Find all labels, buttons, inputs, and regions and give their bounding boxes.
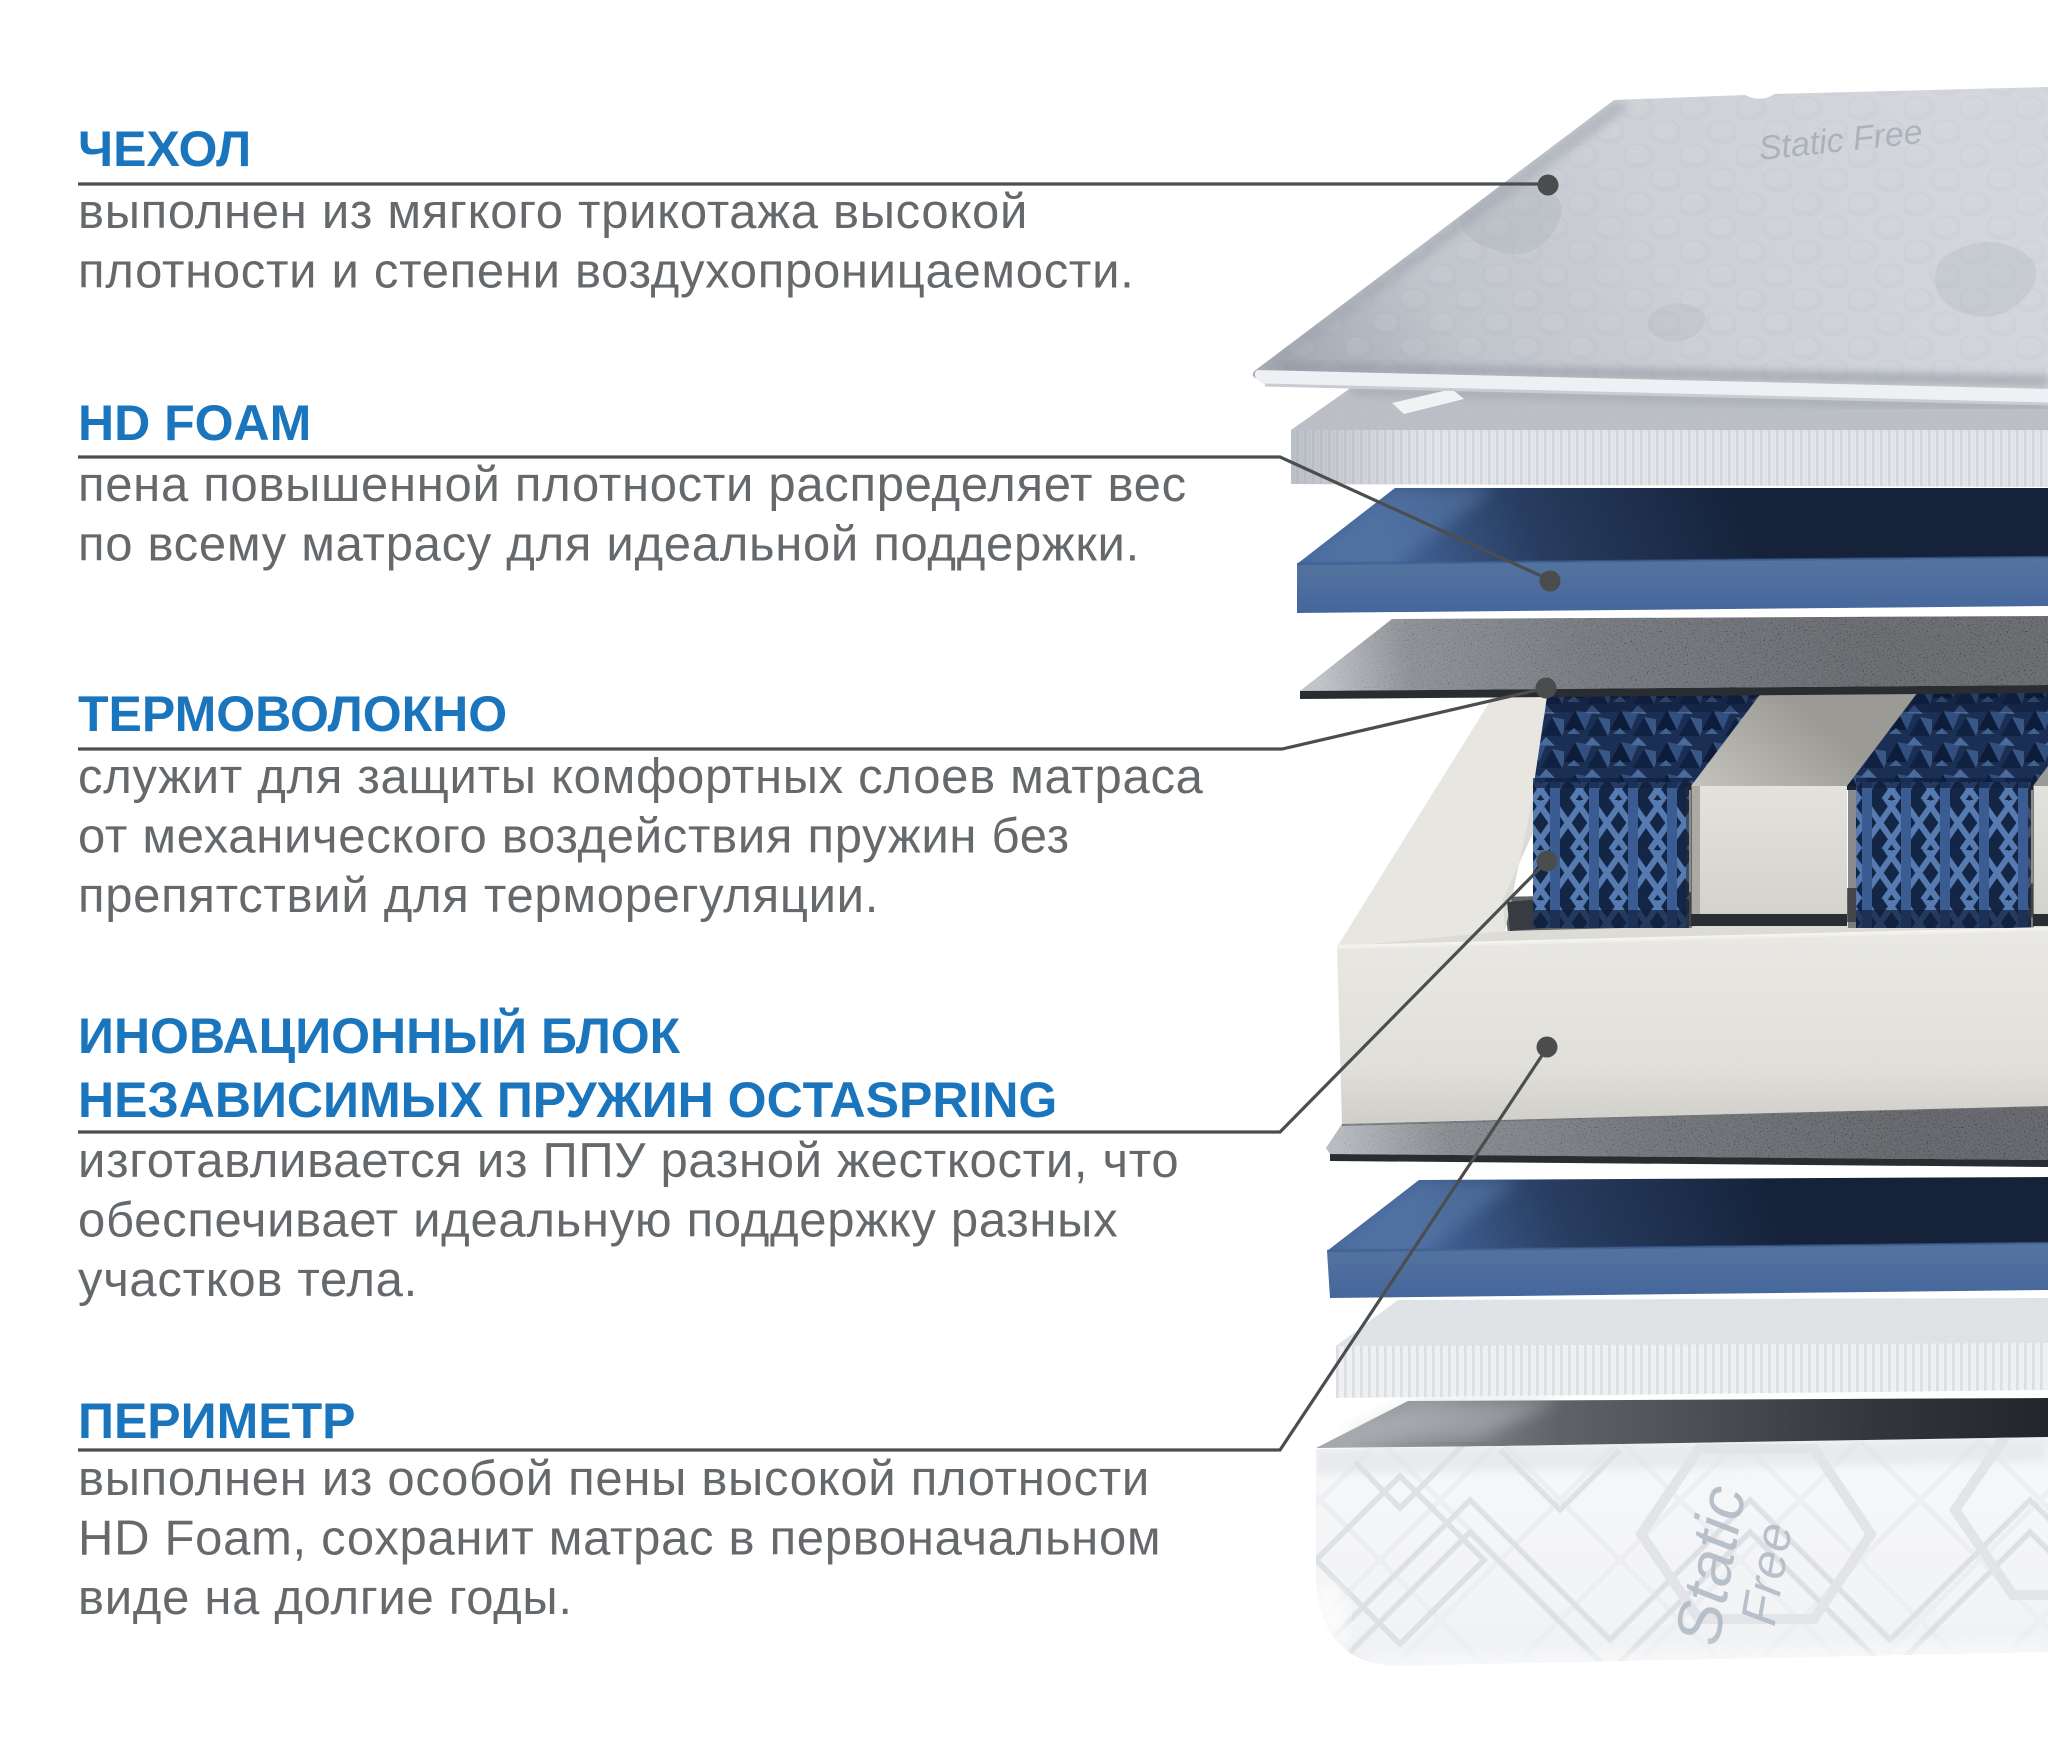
svg-text:участков тела.: участков тела.	[78, 1253, 418, 1307]
svg-text:пена повышенной плотности расп: пена повышенной плотности распределяет в…	[78, 458, 1187, 512]
svg-text:выполнен из особой пены высоко: выполнен из особой пены высокой плотност…	[78, 1452, 1150, 1506]
svg-text:виде на долгие годы.: виде на долгие годы.	[78, 1571, 573, 1625]
svg-text:изготавливается из ППУ разной: изготавливается из ППУ разной жесткости,…	[78, 1134, 1179, 1188]
svg-text:обеспечивает идеальную поддерж: обеспечивает идеальную поддержку разных	[78, 1194, 1118, 1248]
svg-text:по всему матрасу для идеальной: по всему матрасу для идеальной поддержки…	[78, 518, 1140, 572]
svg-text:от механического воздействия п: от механического воздействия пружин без	[78, 810, 1070, 864]
svg-text:служит для защиты комфортных с: служит для защиты комфортных слоев матра…	[78, 750, 1204, 804]
svg-text:ТЕРМОВОЛОКНО: ТЕРМОВОЛОКНО	[78, 686, 507, 742]
svg-text:ПЕРИМЕТР: ПЕРИМЕТР	[78, 1393, 355, 1449]
svg-text:препятствий для терморегуляции: препятствий для терморегуляции.	[78, 869, 879, 923]
svg-text:выполнен из мягкого трикотажа: выполнен из мягкого трикотажа высокой	[78, 185, 1028, 239]
svg-text:НЕЗАВИСИМЫХ ПРУЖИН OCTASPRING: НЕЗАВИСИМЫХ ПРУЖИН OCTASPRING	[78, 1072, 1057, 1128]
svg-text:плотности и степени воздухопро: плотности и степени воздухопроницаемости…	[78, 245, 1134, 299]
svg-text:ИНОВАЦИОННЫЙ БЛОК: ИНОВАЦИОННЫЙ БЛОК	[78, 1007, 681, 1064]
svg-text:HD Foam, сохранит матрас в пер: HD Foam, сохранит матрас в первоначально…	[78, 1512, 1161, 1566]
svg-text:ЧЕХОЛ: ЧЕХОЛ	[78, 121, 251, 177]
svg-text:HD FOAM: HD FOAM	[78, 395, 311, 451]
